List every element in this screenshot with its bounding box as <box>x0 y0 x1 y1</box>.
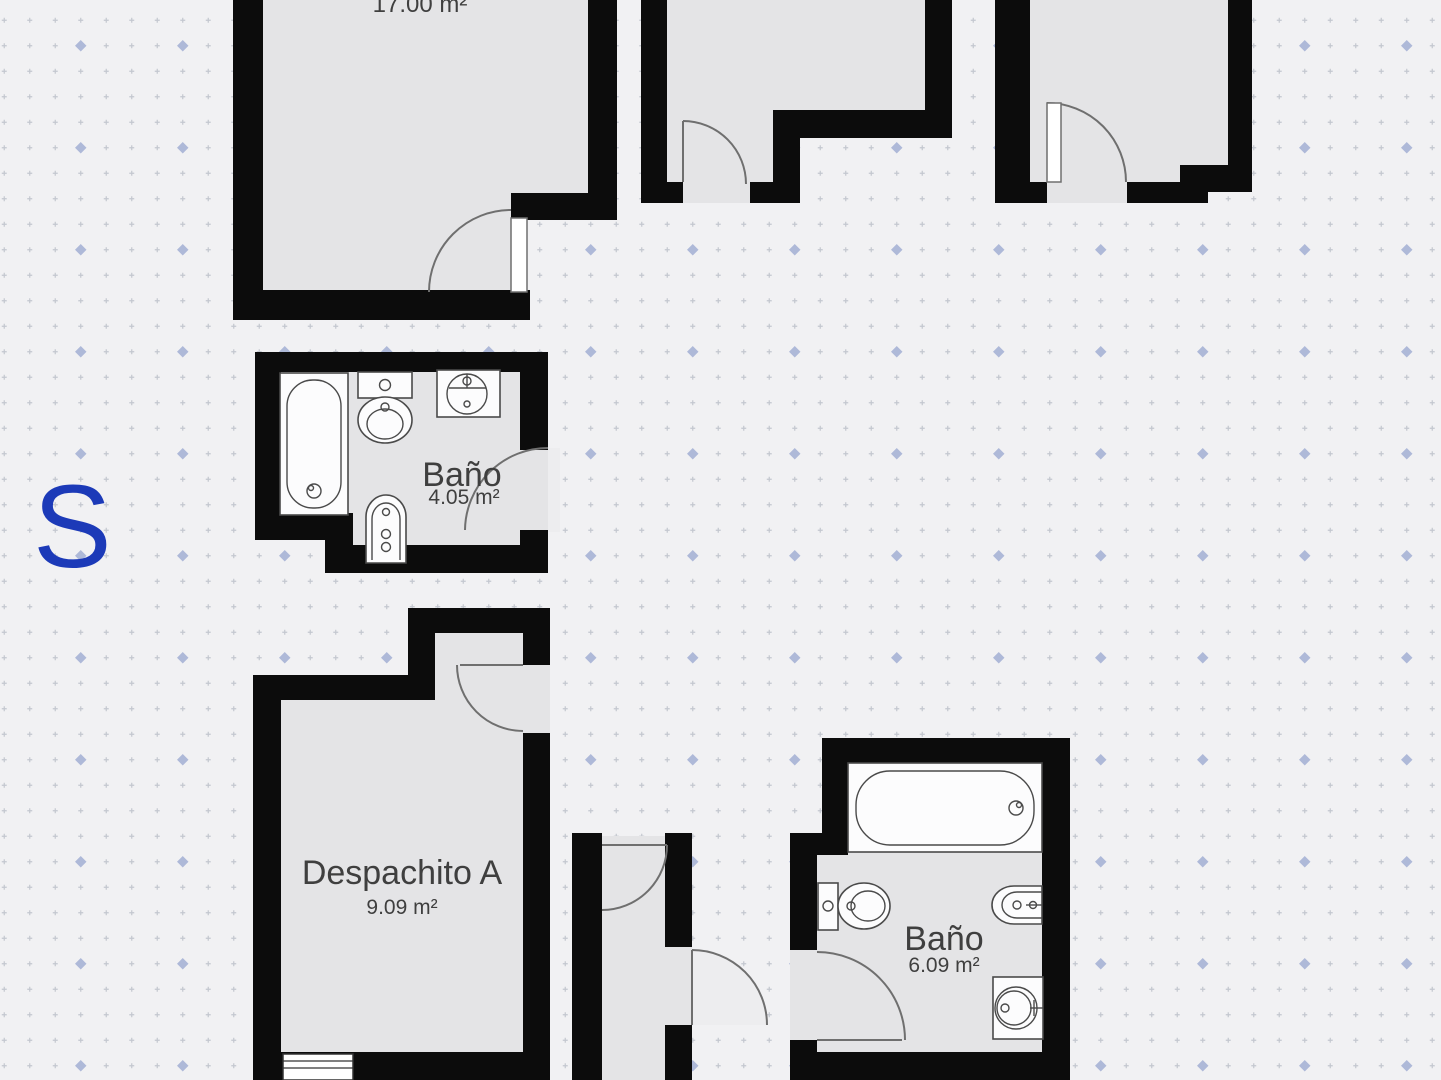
room-name-label: Baño <box>904 920 983 958</box>
toilet-icon[interactable] <box>818 883 890 930</box>
bathtub-icon[interactable] <box>848 763 1042 852</box>
sink-icon[interactable] <box>437 370 500 417</box>
sink-icon[interactable] <box>993 977 1043 1039</box>
room-top-right[interactable] <box>995 0 1252 203</box>
room-area-label: 4.05 m² <box>428 486 499 509</box>
room-despachito-a[interactable]: Despachito A 9.09 m² <box>253 608 550 1080</box>
toilet-icon[interactable] <box>358 372 412 443</box>
window[interactable] <box>283 1054 353 1080</box>
room-name-label: Despachito A <box>302 854 503 892</box>
door-leaf[interactable] <box>1047 103 1061 182</box>
floor-plan-canvas: 17.00 m² <box>0 0 1441 1080</box>
floor-plan-svg: 17.00 m² <box>0 0 1441 1080</box>
room-bathroom-bottom[interactable]: Baño 6.09 m² <box>790 738 1070 1080</box>
room-area-label: 9.09 m² <box>366 896 437 919</box>
corridor-floor[interactable] <box>602 836 665 1080</box>
bidet-icon[interactable] <box>366 495 406 563</box>
door-leaf[interactable] <box>511 218 527 292</box>
room-area-label: 17.00 m² <box>373 0 468 18</box>
bathtub-icon[interactable] <box>280 373 348 515</box>
room-bathroom-top[interactable]: Baño 4.05 m² <box>255 352 560 573</box>
room-area-label: 6.09 m² <box>908 954 979 977</box>
watermark-letter: S <box>33 461 112 593</box>
bidet-icon[interactable] <box>992 886 1042 924</box>
